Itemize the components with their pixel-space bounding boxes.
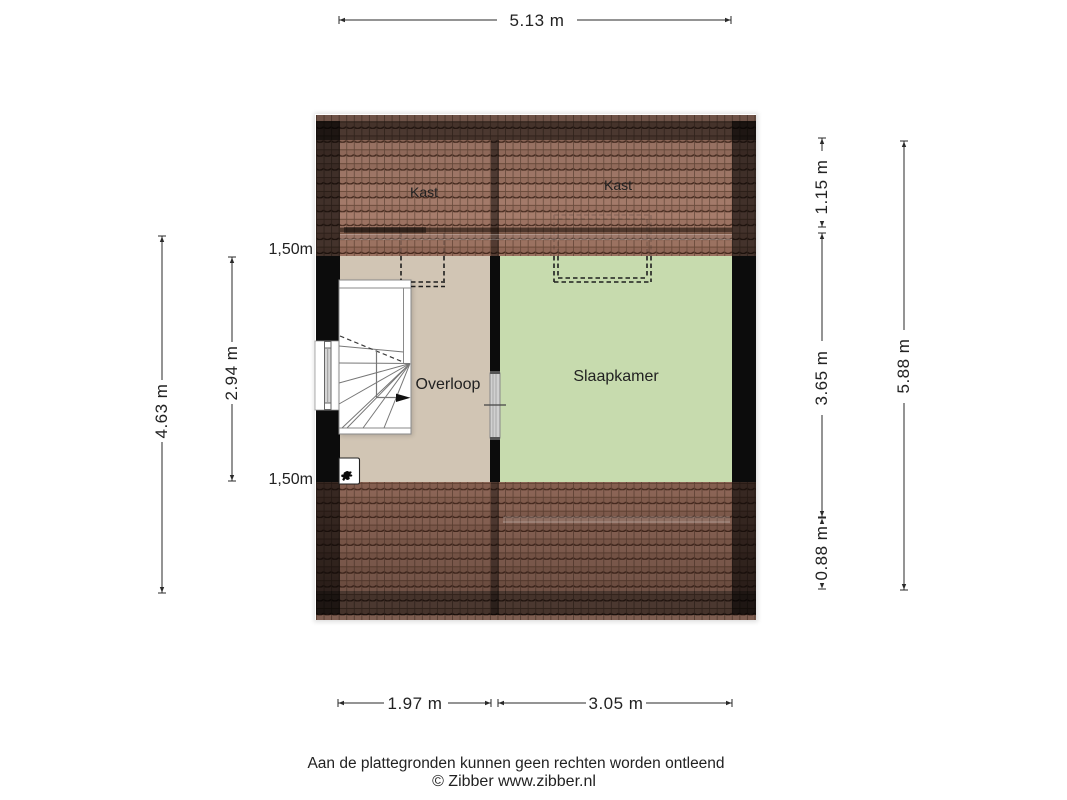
svg-text:1.15 m: 1.15 m: [812, 160, 831, 215]
svg-text:1,50m: 1,50m: [269, 241, 313, 258]
svg-text:0.88 m: 0.88 m: [812, 526, 831, 581]
svg-text:Aan de plattegronden kunnen ge: Aan de plattegronden kunnen geen rechten…: [307, 755, 724, 772]
svg-text:1.97 m: 1.97 m: [388, 694, 443, 713]
svg-text:Kast: Kast: [604, 177, 632, 193]
svg-text:3.05 m: 3.05 m: [589, 694, 644, 713]
svg-text:3.65 m: 3.65 m: [812, 351, 831, 406]
svg-text:Slaapkamer: Slaapkamer: [573, 368, 659, 385]
svg-text:© Zibber www.zibber.nl: © Zibber www.zibber.nl: [432, 773, 596, 790]
svg-text:2.94 m: 2.94 m: [222, 346, 241, 401]
svg-text:Kast: Kast: [410, 184, 438, 200]
svg-text:5.88 m: 5.88 m: [894, 339, 913, 394]
svg-text:4.63 m: 4.63 m: [152, 384, 171, 439]
svg-text:5.13 m: 5.13 m: [510, 11, 565, 30]
svg-text:1,50m: 1,50m: [269, 471, 313, 488]
svg-text:Overloop: Overloop: [416, 376, 481, 393]
